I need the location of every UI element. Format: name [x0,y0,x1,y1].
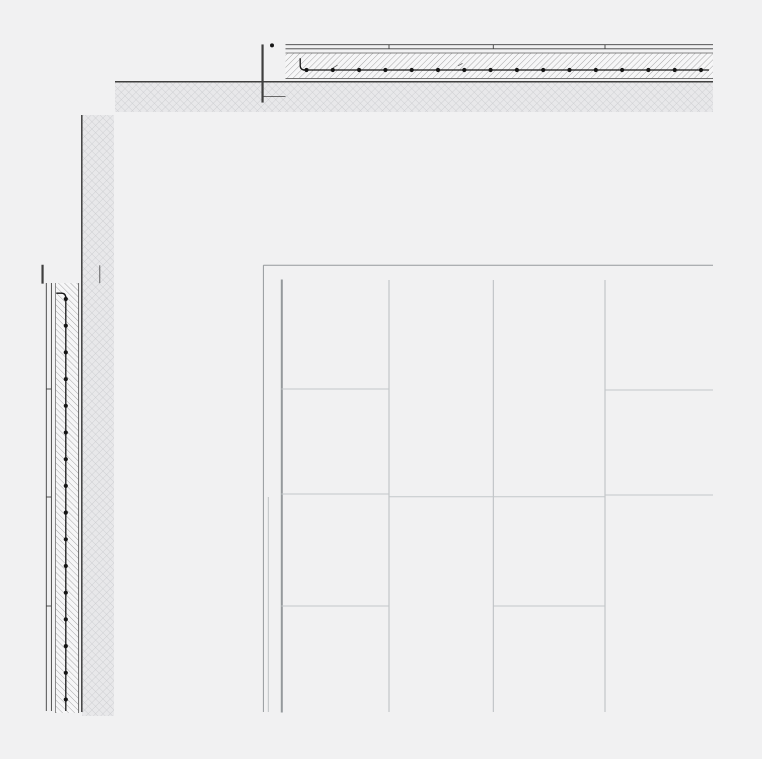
slab-rebar-dot [699,68,703,72]
wall-rebar-dot [64,591,68,595]
ground-band-horizontal [115,82,713,112]
wall-rebar-dot [64,297,68,301]
wall-rebar-dot [64,537,68,541]
wall-rebar-dot [64,377,68,381]
slab-rebar-dot [410,68,414,72]
slab-rebar-dot [436,68,440,72]
wall-rebar-dot [64,510,68,514]
wall-rebar-dot [64,430,68,434]
slab-rebar-dot [331,68,335,72]
wall-rebar-dot [64,324,68,328]
slab-rebar-dot [541,68,545,72]
parapet-block [262,45,263,102]
slab-rebar-dot [462,68,466,72]
cad-detail-drawing [0,0,762,759]
wall-rebar-dot [64,644,68,648]
slab-rebar-dot [646,68,650,72]
parapet-rebar-dot [270,43,274,47]
ground-band-vertical [82,115,114,716]
slab-rebar-dot [357,68,361,72]
wall-rebar-dot [64,350,68,354]
slab-rebar-dot [304,68,308,72]
wall-rebar-dot [64,671,68,675]
technical-drawing-canvas [0,0,762,759]
slab-rebar-dot [489,68,493,72]
wall-rebar-dot [64,697,68,701]
wall-rebar-dot [64,617,68,621]
slab-rebar-dot [620,68,624,72]
drawing-layers [42,43,713,716]
slab-rebar-dot [383,68,387,72]
wall-rebar-dot [64,457,68,461]
slab-rebar-dot [515,68,519,72]
wall-rebar-dot [64,484,68,488]
wall-rebar-dot [64,564,68,568]
slab-rebar-dot [567,68,571,72]
wall-cap-block [42,265,43,283]
wall-rebar-dot [64,404,68,408]
wall-concrete-hatch [56,283,79,713]
slab-rebar-dot [594,68,598,72]
panel-field [281,280,282,712]
slab-concrete-hatch [286,53,714,79]
slab-rebar-dot [673,68,677,72]
